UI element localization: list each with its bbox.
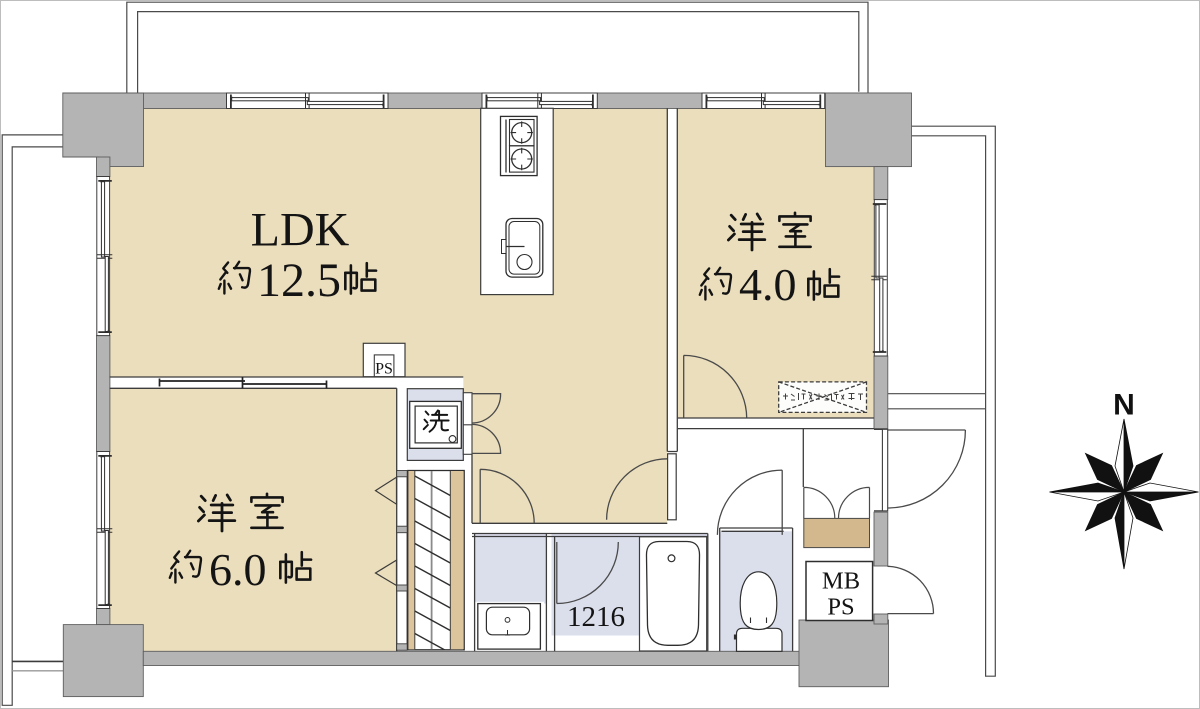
- svg-text:MB: MB: [822, 568, 860, 595]
- svg-text:PS: PS: [375, 361, 393, 378]
- svg-text:PS: PS: [827, 594, 854, 621]
- svg-text:6.0: 6.0: [209, 544, 267, 595]
- svg-text:LDK: LDK: [251, 204, 350, 257]
- svg-text:4.0: 4.0: [739, 259, 797, 310]
- svg-text:1216: 1216: [567, 601, 625, 633]
- svg-text:12.5: 12.5: [257, 254, 341, 307]
- svg-text:N: N: [1113, 389, 1135, 422]
